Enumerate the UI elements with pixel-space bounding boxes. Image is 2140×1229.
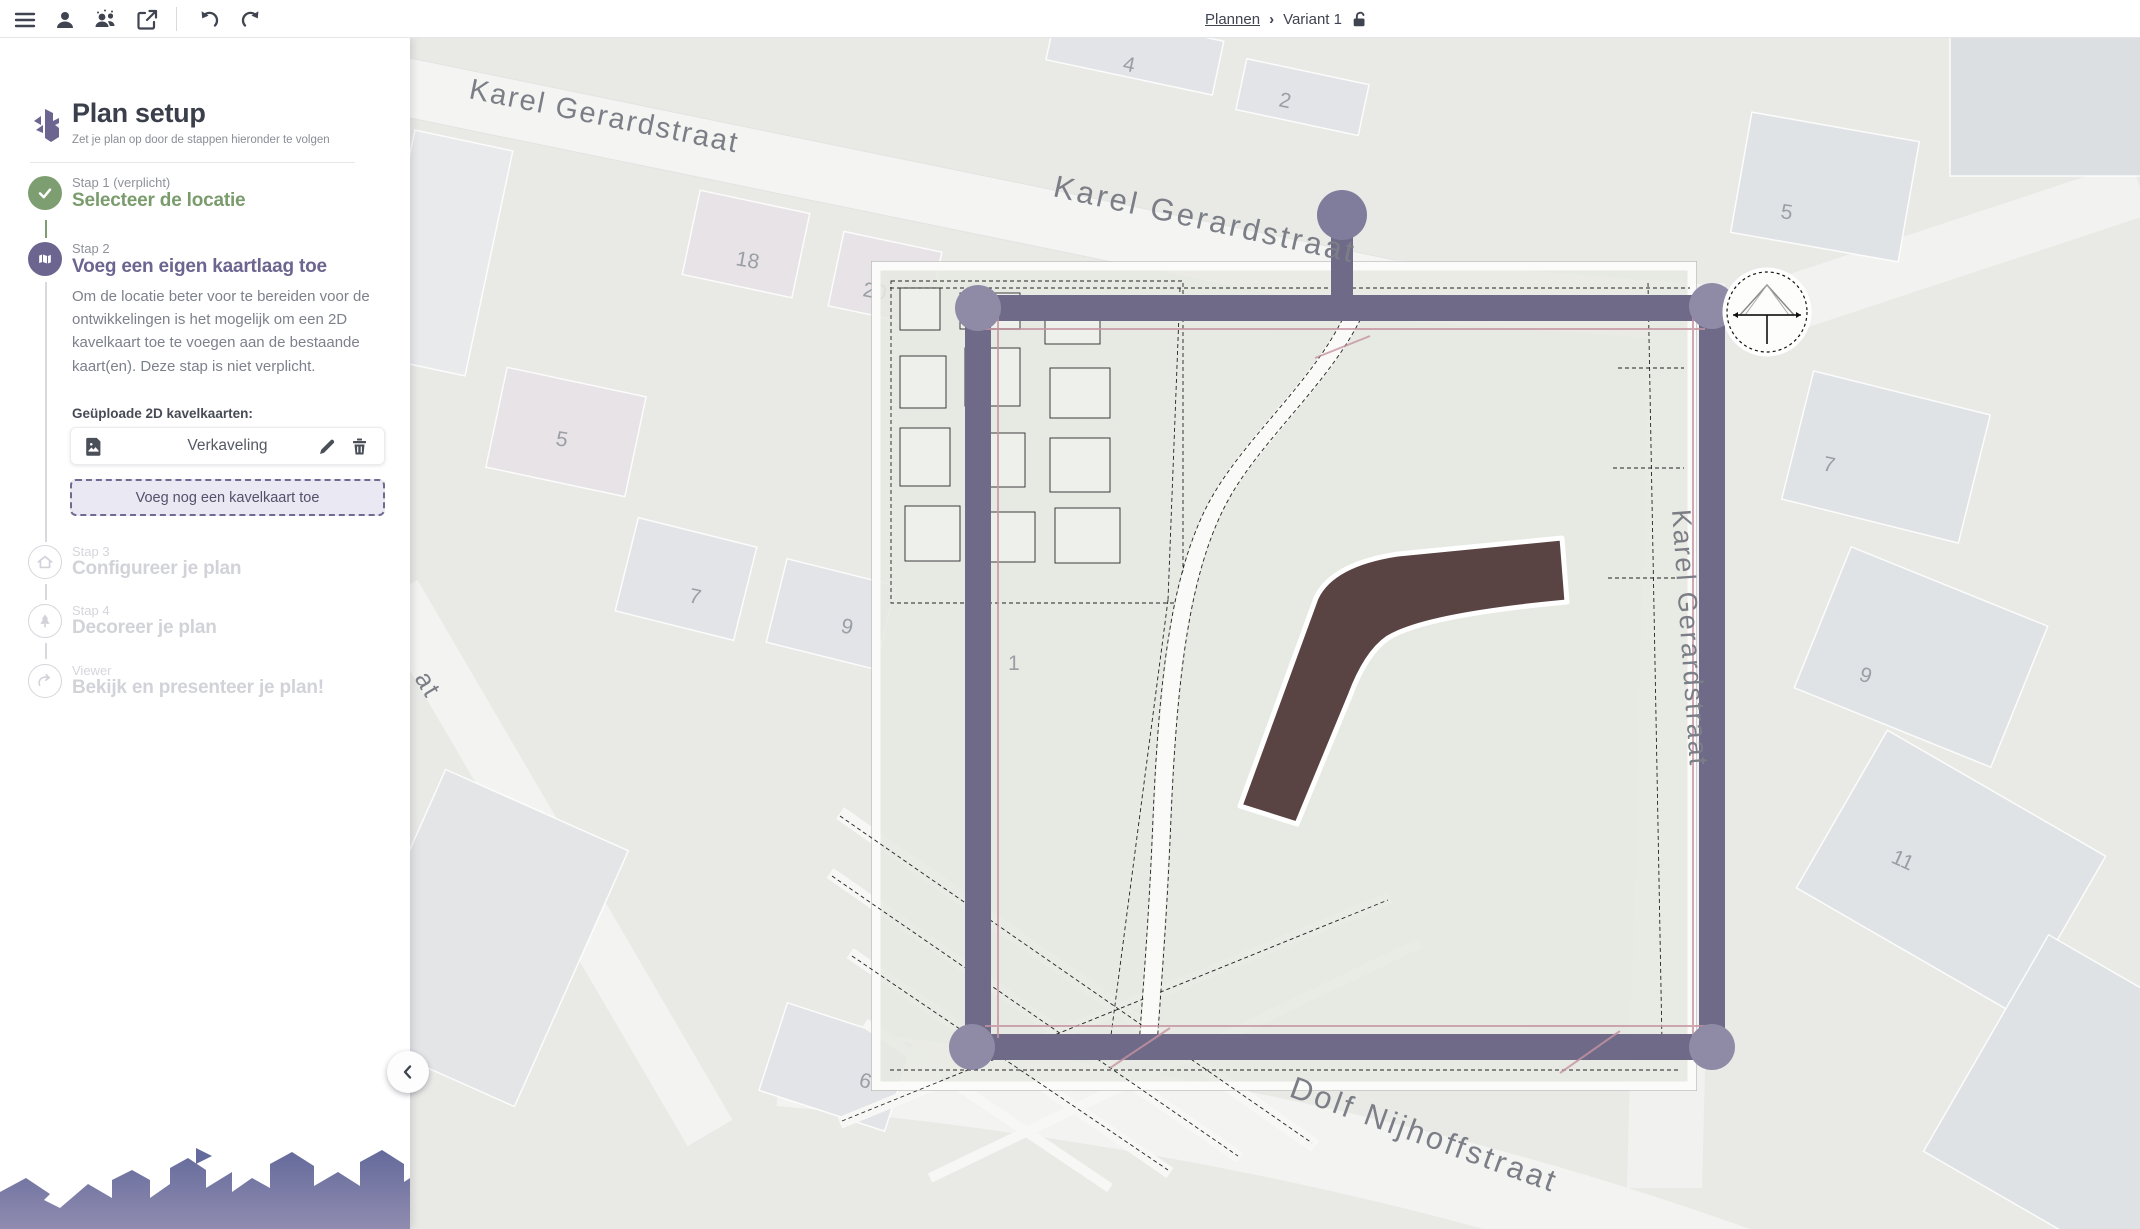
step1-kicker: Stap 1 (verplicht)	[72, 175, 170, 190]
app-window: 20	[0, 0, 2140, 1229]
edit-icon[interactable]	[317, 436, 338, 457]
page-subtitle: Zet je plan op door de stappen hieronder…	[72, 134, 330, 146]
user-icon[interactable]	[52, 7, 78, 33]
step-connector	[45, 282, 47, 542]
redo-icon[interactable]	[238, 7, 264, 33]
step3-title: Configureer je plan	[72, 558, 241, 580]
divider	[30, 162, 355, 163]
step3-kicker: Stap 3	[72, 544, 110, 559]
step1-check-icon	[28, 176, 62, 210]
skyline-graphic	[0, 1128, 410, 1229]
breadcrumb-current: Variant 1	[1283, 11, 1342, 28]
trash-icon[interactable]	[349, 436, 370, 457]
undo-icon[interactable]	[196, 7, 222, 33]
menu-icon[interactable]	[12, 7, 38, 33]
step-connector	[45, 643, 47, 659]
sidebar-collapse-button[interactable]	[387, 1051, 429, 1093]
viewer-share-icon	[28, 664, 62, 698]
step1-title[interactable]: Selecteer de locatie	[72, 190, 245, 212]
uploaded-kavelkaart-row: Verkaveling	[70, 427, 385, 465]
unlock-icon[interactable]	[1351, 10, 1369, 28]
viewer-title: Bekijk en presenteer je plan!	[72, 677, 324, 699]
map-canvas[interactable]: 20	[410, 38, 2140, 1229]
step2-description: Om de locatie beter voor te bereiden voo…	[72, 285, 384, 378]
add-kavelkaart-button[interactable]: Voeg nog een kavelkaart toe	[70, 479, 385, 516]
step4-title: Decoreer je plan	[72, 617, 217, 639]
external-link-icon[interactable]	[134, 7, 160, 33]
handle-bottom-left[interactable]	[949, 1024, 995, 1070]
breadcrumb-chevron-icon: ›	[1269, 11, 1274, 28]
step4-tree-icon	[28, 604, 62, 638]
page-title: Plan setup	[72, 98, 206, 129]
app-logo-icon	[30, 106, 70, 146]
north-arrow-icon[interactable]	[1727, 272, 1807, 352]
toolbar-divider	[176, 7, 177, 31]
plan-setup-sidebar: Plan setup Zet je plan op door de stappe…	[0, 38, 410, 1229]
step2-title[interactable]: Voeg een eigen kaartlaag toe	[72, 256, 327, 278]
step2-kicker: Stap 2	[72, 241, 110, 256]
users-icon[interactable]	[92, 7, 118, 33]
top-toolbar: Plannen › Variant 1	[0, 0, 2140, 38]
breadcrumb-plannen-link[interactable]: Plannen	[1205, 11, 1260, 28]
handle-top-left[interactable]	[955, 285, 1001, 331]
step2-map-icon	[28, 242, 62, 276]
handle-bottom-right[interactable]	[1689, 1024, 1735, 1070]
step3-home-icon	[28, 545, 62, 579]
svg-text:18: 18	[734, 247, 761, 274]
viewer-kicker: Viewer	[72, 663, 112, 678]
breadcrumb: Plannen › Variant 1	[1205, 0, 1369, 38]
svg-text:1: 1	[1008, 652, 1020, 675]
step-connector	[45, 584, 47, 600]
uploads-label: Geüploade 2D kavelkaarten:	[72, 406, 253, 421]
step-connector	[45, 220, 47, 238]
step4-kicker: Stap 4	[72, 603, 110, 618]
